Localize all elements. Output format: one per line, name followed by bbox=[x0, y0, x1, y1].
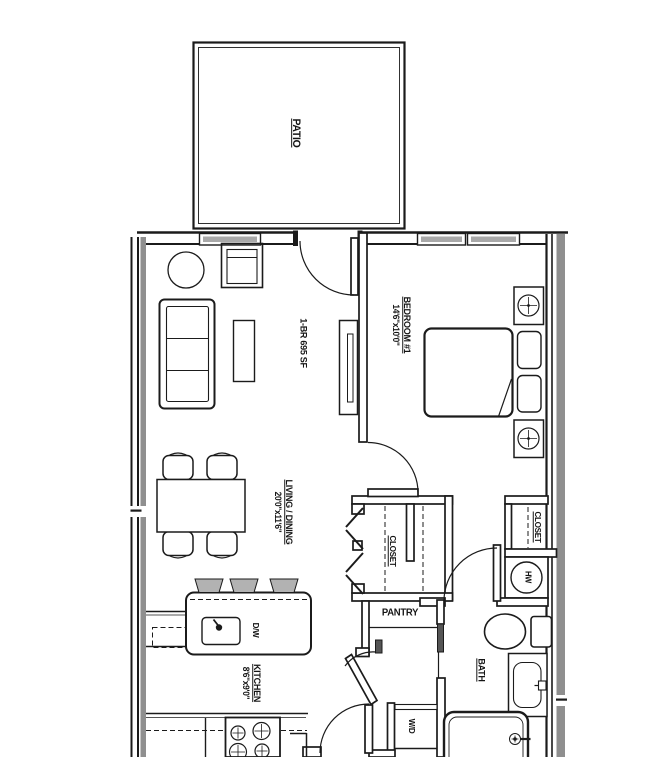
right-party-wall bbox=[547, 234, 568, 757]
entry-door-leaf bbox=[365, 705, 373, 753]
refrigerator-area bbox=[153, 628, 186, 648]
bar-stools bbox=[195, 579, 298, 593]
shower bbox=[444, 712, 531, 757]
round-side-table bbox=[168, 252, 204, 288]
washer-dryer-label: W/D bbox=[406, 719, 416, 734]
armchair bbox=[222, 244, 263, 288]
pantry-door-panel bbox=[376, 640, 383, 653]
living-dining-label: LIVING / DINING 20'0"x11'6" bbox=[273, 480, 293, 545]
floor-plan: PATIO 1-BR 695 SF BEDROOM #1 14'6"x10'0"… bbox=[0, 0, 650, 757]
window bbox=[468, 234, 520, 246]
bedroom-label: BEDROOM #1 14'6"x10'0" bbox=[391, 297, 411, 354]
window bbox=[418, 234, 466, 246]
sofa bbox=[160, 300, 215, 409]
kitchen-label: KITCHEN 8'6"x9'0" bbox=[241, 664, 261, 702]
tv-console bbox=[340, 321, 358, 415]
vanity-sink bbox=[509, 654, 548, 717]
closet-label: CLOSET bbox=[387, 535, 397, 566]
left-exterior-wall bbox=[128, 237, 148, 757]
dining-table bbox=[157, 480, 245, 533]
wd-closet-door bbox=[395, 705, 437, 710]
pantry-label: PANTRY bbox=[382, 607, 418, 618]
pillow bbox=[518, 332, 542, 369]
bed bbox=[425, 329, 513, 417]
bath-label: BATH bbox=[475, 658, 486, 681]
nightstand-lamp bbox=[514, 420, 544, 458]
island-sink bbox=[202, 618, 240, 645]
unit-size-label: 1-BR 695 SF bbox=[297, 318, 308, 368]
bedroom-door-leaf bbox=[368, 489, 418, 497]
bath-door-leaf bbox=[494, 545, 501, 601]
closet-label: CLOSET bbox=[532, 511, 542, 542]
floor-plan-linework bbox=[0, 0, 650, 757]
chamfer-wall bbox=[346, 655, 378, 705]
patio-door-leaf bbox=[351, 238, 358, 295]
range bbox=[226, 718, 281, 757]
pantry-pocket-door bbox=[438, 624, 444, 652]
patio-label: PATIO bbox=[290, 119, 302, 148]
dishwasher-label: D/W bbox=[250, 623, 260, 638]
pillow bbox=[518, 376, 542, 413]
water-heater-label: HW bbox=[523, 571, 532, 583]
nightstand-lamp bbox=[514, 287, 544, 325]
toilet bbox=[485, 614, 552, 649]
bifold-closet-doors bbox=[346, 508, 363, 594]
coffee-table bbox=[234, 321, 255, 382]
